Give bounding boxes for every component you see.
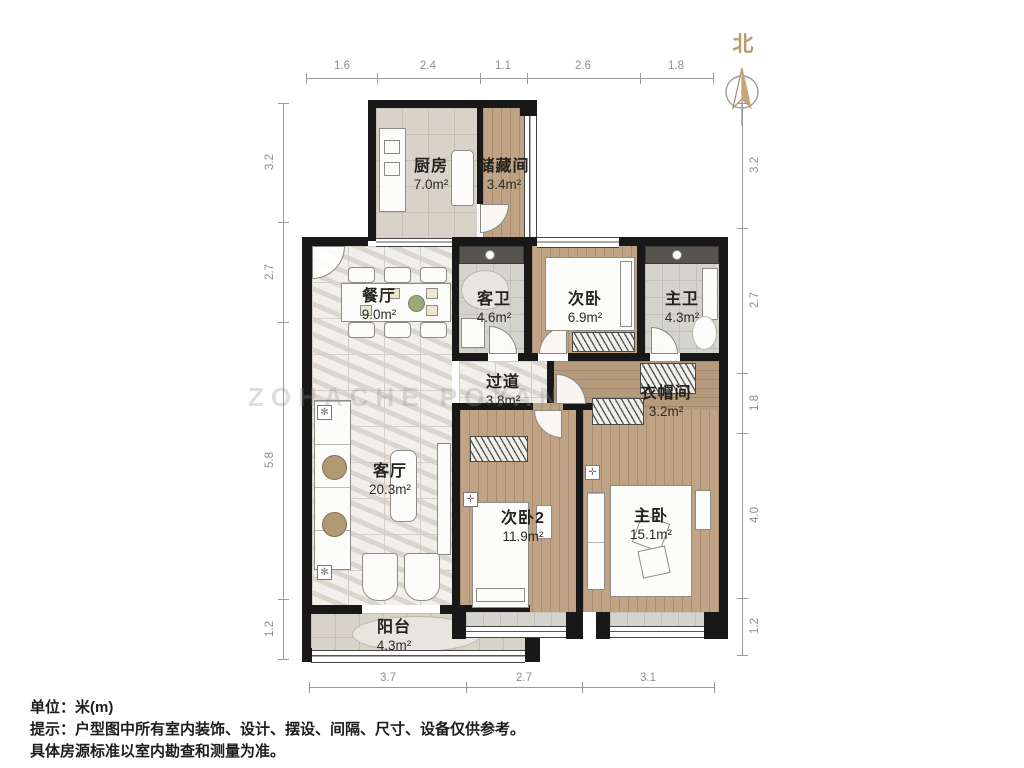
room-area: 3.8m² xyxy=(486,393,521,408)
dim-value: 5.8 xyxy=(264,452,276,468)
room-name: 主卧 xyxy=(630,502,672,526)
room-label-bedroom2: 次卧2 11.9m² xyxy=(501,504,545,544)
kitchen-stove xyxy=(384,162,400,176)
master-quilt xyxy=(637,545,670,578)
dim-value: 2.7 xyxy=(264,264,276,280)
room-area: 9.0m² xyxy=(362,307,397,322)
room-area: 11.9m² xyxy=(501,529,545,544)
dim-line-right xyxy=(742,103,743,655)
dim-tick xyxy=(737,373,748,374)
wall xyxy=(637,246,645,356)
room-name: 主卫 xyxy=(665,285,700,309)
room-name: 厨房 xyxy=(414,152,449,176)
wall xyxy=(619,237,728,246)
dim-tick xyxy=(278,103,289,104)
room-name: 衣帽间 xyxy=(640,379,691,403)
room-label-balcony: 阳台 4.3m² xyxy=(377,613,412,653)
bedroom2-bay-sill xyxy=(466,612,566,626)
wall xyxy=(566,612,583,639)
room-area: 4.3m² xyxy=(377,638,412,653)
bedroom2-bay-window xyxy=(466,626,566,638)
sofa-plant-icon xyxy=(322,512,347,537)
wall xyxy=(452,410,460,605)
dim-value: 1.8 xyxy=(749,395,761,411)
dim-value: 2.4 xyxy=(420,60,436,72)
master-bath-vanity xyxy=(645,246,719,264)
table-plate xyxy=(426,305,438,316)
dim-tick xyxy=(278,599,289,600)
dim-tick xyxy=(278,322,289,323)
dim-value: 1.1 xyxy=(495,60,511,72)
room-name: 过道 xyxy=(486,368,521,392)
kitchen-pass xyxy=(376,238,452,247)
wall xyxy=(680,353,728,361)
dim-value: 4.0 xyxy=(749,507,761,523)
dim-tick xyxy=(737,655,748,656)
room-label-master-bath: 主卫 4.3m² xyxy=(665,285,700,325)
wall xyxy=(452,246,459,356)
dim-tick xyxy=(582,682,583,693)
dining-chair xyxy=(420,322,447,338)
floor-drain-icon: ✛ xyxy=(463,492,478,507)
dim-tick xyxy=(466,682,467,693)
room-area: 4.3m² xyxy=(665,310,700,325)
room-label-guest-bath: 客卫 4.6m² xyxy=(477,285,512,325)
bedroom-c-pillow xyxy=(620,261,632,327)
master-bath-faucet-icon xyxy=(672,250,682,260)
wall xyxy=(704,612,728,639)
room-label-cloakroom: 衣帽间 3.2m² xyxy=(640,379,691,419)
room-name: 次卧 xyxy=(568,285,603,309)
dim-tick xyxy=(480,73,481,84)
room-name: 次卧2 xyxy=(501,504,545,528)
sofa-plant-icon xyxy=(322,455,347,480)
dim-value: 3.7 xyxy=(380,672,396,684)
dining-chair xyxy=(420,267,447,283)
room-area: 20.3m² xyxy=(369,482,411,497)
room-area: 3.4m² xyxy=(478,177,529,192)
room-name: 阳台 xyxy=(377,613,412,637)
dim-value: 1.6 xyxy=(334,60,350,72)
north-label: 北 xyxy=(729,28,757,58)
dim-value: 3.2 xyxy=(749,157,761,173)
dim-value: 2.7 xyxy=(749,292,761,308)
sofa xyxy=(314,400,351,570)
wall xyxy=(302,237,312,614)
dim-tick xyxy=(278,222,289,223)
bedroom2-pillow xyxy=(476,588,525,602)
room-area: 15.1m² xyxy=(630,527,672,542)
dining-chair xyxy=(348,267,375,283)
wall xyxy=(518,353,538,361)
master-bay-sill xyxy=(610,612,704,626)
fridge xyxy=(451,150,474,206)
kitchen-sink xyxy=(384,140,400,154)
room-area: 6.9m² xyxy=(568,310,603,325)
bedroom-c-wardrobe xyxy=(572,332,635,352)
master-wardrobe xyxy=(587,492,605,590)
dim-value: 3.1 xyxy=(640,672,656,684)
room-label-hallway: 过道 3.8m² xyxy=(486,368,521,408)
room-label-kitchen: 厨房 7.0m² xyxy=(414,152,449,192)
dim-tick xyxy=(309,682,310,693)
dim-tick xyxy=(737,598,748,599)
dining-chair xyxy=(384,267,411,283)
master-nightstand xyxy=(695,490,711,530)
wall xyxy=(302,648,312,662)
note-tip1: 提示：户型图中所有室内装饰、设计、摆设、间隔、尺寸、设备仅供参考。 xyxy=(30,718,525,739)
guest-bath-faucet-icon xyxy=(485,250,495,260)
wall xyxy=(563,403,593,410)
dining-chair xyxy=(384,322,411,338)
room-name: 客厅 xyxy=(369,457,411,481)
dim-tick xyxy=(737,433,748,434)
master-bay-window xyxy=(610,626,704,638)
table-plant-icon xyxy=(408,295,425,312)
room-label-living: 客厅 20.3m² xyxy=(369,457,411,497)
room-label-storage: 储藏间 3.4m² xyxy=(478,152,529,192)
wall xyxy=(368,100,537,108)
lounge-chair xyxy=(362,553,398,601)
dim-line-bottom xyxy=(309,687,715,688)
room-area: 3.2m² xyxy=(640,404,691,419)
dim-tick xyxy=(737,103,748,104)
wall xyxy=(576,410,583,612)
room-name: 客卫 xyxy=(477,285,512,309)
wall xyxy=(302,605,362,614)
room-name: 储藏间 xyxy=(478,152,529,176)
tv-cabinet xyxy=(437,443,451,555)
dim-tick xyxy=(377,73,378,84)
dim-tick xyxy=(713,73,714,84)
room-label-bedroom-c: 次卧 6.9m² xyxy=(568,285,603,325)
room-name: 餐厅 xyxy=(362,282,397,306)
dim-value: 1.2 xyxy=(749,618,761,634)
dim-line-top xyxy=(306,78,714,79)
dim-value: 3.2 xyxy=(264,154,276,170)
wall xyxy=(452,237,537,246)
wall xyxy=(302,613,311,651)
dim-tick xyxy=(714,682,715,693)
dim-line-left xyxy=(283,103,284,659)
wall xyxy=(452,612,466,639)
wall xyxy=(596,612,610,639)
dim-value: 2.7 xyxy=(516,672,532,684)
wall xyxy=(525,648,540,662)
table-plate xyxy=(426,288,438,299)
floor-drain-icon: ✛ xyxy=(585,465,600,480)
wall xyxy=(719,237,728,614)
lounge-chair xyxy=(404,553,440,601)
room-area: 7.0m² xyxy=(414,177,449,192)
dim-value: 1.2 xyxy=(264,621,276,637)
bedroom-c-window xyxy=(537,237,619,248)
side-table: ✻ xyxy=(317,565,332,580)
dim-value: 1.8 xyxy=(668,60,684,72)
master-bath-cabinet xyxy=(702,268,718,320)
dim-value: 2.6 xyxy=(575,60,591,72)
wall xyxy=(568,353,650,361)
room-label-master-bedroom: 主卧 15.1m² xyxy=(630,502,672,542)
floor-plan: ✻ ✻ ✛ ✛ 厨房 7.0m² 储藏间 3.4m² 餐厅 9.0m² 客卫 4… xyxy=(0,0,1024,768)
dim-tick xyxy=(737,228,748,229)
note-unit: 单位：米(m) xyxy=(30,696,113,717)
dim-tick xyxy=(640,73,641,84)
note-tip2: 具体房源标准以室内勘查和测量为准。 xyxy=(30,740,285,761)
wall xyxy=(452,353,488,361)
dim-tick xyxy=(278,659,289,660)
wall xyxy=(368,100,376,241)
wall xyxy=(520,100,537,116)
dim-tick xyxy=(527,73,528,84)
room-area: 4.6m² xyxy=(477,310,512,325)
bedroom2-wardrobe xyxy=(470,436,528,462)
room-label-dining: 餐厅 9.0m² xyxy=(362,282,397,322)
cloakroom-wardrobe xyxy=(592,398,644,425)
dining-chair xyxy=(348,322,375,338)
wall xyxy=(524,246,532,356)
balcony-window xyxy=(311,650,525,663)
dim-tick xyxy=(306,73,307,84)
